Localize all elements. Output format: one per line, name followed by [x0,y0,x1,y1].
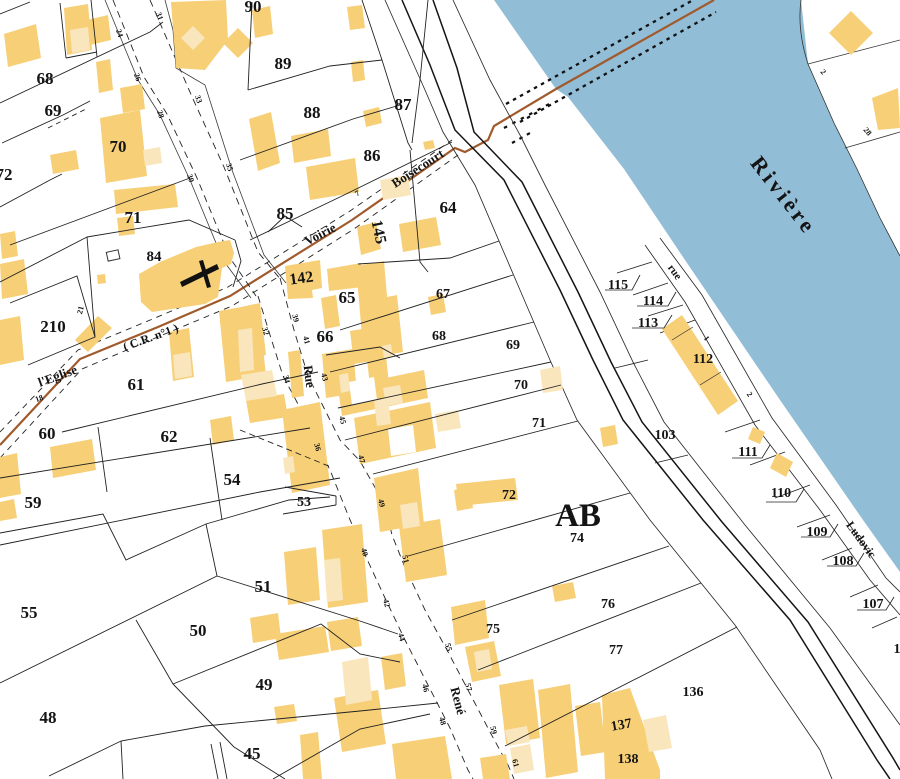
svg-text:115: 115 [608,278,628,293]
svg-text:66: 66 [317,327,334,346]
svg-text:AB: AB [555,498,601,534]
svg-text:72: 72 [502,488,516,503]
svg-text:49: 49 [256,675,273,694]
svg-text:87: 87 [395,95,413,114]
svg-text:71: 71 [125,208,142,227]
svg-text:50: 50 [190,621,207,640]
svg-text:Rue: Rue [301,364,319,388]
svg-text:1: 1 [894,642,900,657]
svg-text:85: 85 [277,204,294,223]
svg-text:77: 77 [609,643,623,658]
svg-text:64: 64 [440,198,458,217]
svg-text:71: 71 [532,416,546,431]
svg-text:86: 86 [364,146,381,165]
svg-text:136: 136 [683,685,704,700]
svg-text:65: 65 [339,288,356,307]
svg-text:112: 112 [693,352,713,367]
svg-text:142: 142 [288,268,314,288]
svg-text:53: 53 [297,495,311,510]
svg-text:109: 109 [807,525,828,540]
svg-text:113: 113 [638,316,658,331]
svg-text:59: 59 [25,493,42,512]
svg-text:68: 68 [432,329,446,344]
svg-text:68: 68 [37,69,54,88]
svg-text:54: 54 [224,470,242,489]
svg-text:55: 55 [21,603,38,622]
svg-text:75: 75 [486,622,500,637]
svg-text:90: 90 [245,0,262,16]
svg-text:138: 138 [618,752,639,767]
svg-text:107: 107 [863,597,884,612]
svg-text:88: 88 [304,103,321,122]
svg-text:114: 114 [643,294,663,309]
svg-text:110: 110 [771,486,791,501]
svg-text:67: 67 [436,287,450,302]
svg-text:103: 103 [655,428,676,443]
svg-text:45: 45 [244,744,261,763]
svg-text:108: 108 [833,554,854,569]
svg-text:69: 69 [506,338,520,353]
svg-text:89: 89 [275,54,292,73]
svg-text:76: 76 [601,597,615,612]
svg-text:60: 60 [39,424,56,443]
svg-text:111: 111 [738,445,757,460]
svg-text:69: 69 [45,101,62,120]
svg-text:210: 210 [40,317,66,336]
svg-text:84: 84 [147,249,163,265]
svg-text:70: 70 [514,378,528,393]
svg-text:48: 48 [40,708,57,727]
svg-text:72: 72 [0,165,13,184]
svg-text:70: 70 [110,137,127,156]
svg-text:61: 61 [128,375,145,394]
svg-text:62: 62 [161,427,178,446]
svg-text:51: 51 [255,577,272,596]
